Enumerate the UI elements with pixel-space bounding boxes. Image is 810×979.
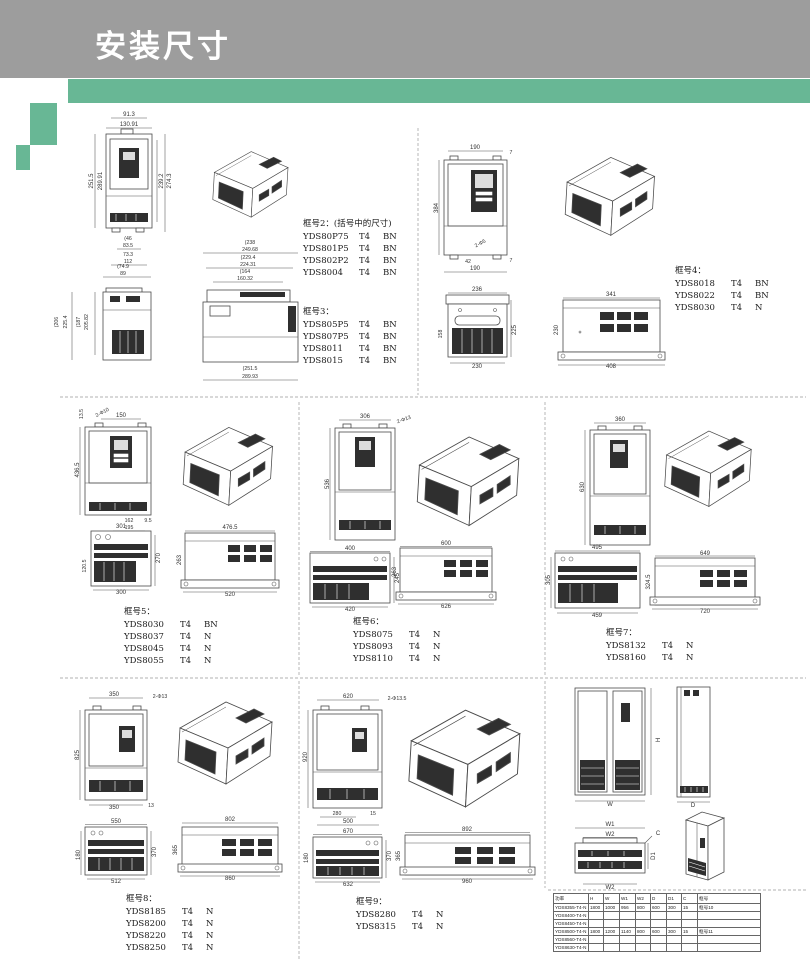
model-code: YDS8185 — [126, 906, 182, 918]
dim-label: 300 — [116, 590, 127, 596]
table-cell — [620, 944, 636, 952]
dim-label: (164 — [240, 269, 250, 275]
table-cell: YDS8450-T4-N — [554, 920, 589, 928]
voltage-class: T4 — [182, 930, 206, 942]
table-header-cell: D1 — [667, 894, 682, 904]
table-cell: 1140 — [620, 928, 636, 936]
model-row: YDS80P75T4BN — [303, 231, 397, 243]
variant-code: BN — [383, 320, 397, 330]
dim-label: 13.5 — [79, 409, 85, 419]
table-row: YDS8500-T4-N 1800 1200 1140 800 600 300 … — [554, 928, 761, 936]
dim-label: (74.9 — [117, 264, 129, 270]
frame6-bottom-view-right: 600 263 626 — [392, 541, 496, 610]
dim-label: 802 — [225, 817, 236, 823]
frame7-front-view: 360 630 — [580, 417, 650, 545]
table-cell — [651, 912, 667, 920]
frame6-isometric-view — [417, 437, 519, 526]
table-cell: 300 — [667, 904, 682, 912]
variant-code: BN — [383, 356, 397, 366]
dim-label: 274.3 — [167, 173, 173, 189]
model-row: YDS8200T4N — [126, 918, 213, 930]
frame5-bottom-view-right: 476.5 263 520 — [177, 525, 279, 598]
dim-label: 495 — [592, 545, 603, 551]
dim-label: 263 — [392, 566, 398, 577]
dim-label: 370 — [387, 850, 393, 861]
frame2-title: 框号2：(括号中的尺寸) — [303, 218, 397, 230]
dim-label: (238 — [245, 240, 255, 246]
table-cell: YDS8355-T4-N — [554, 904, 589, 912]
dim-label: (46 — [124, 236, 132, 242]
table-row: YDS8630-T4-N — [554, 944, 761, 952]
table-header-cell: W — [604, 894, 620, 904]
model-code: YDS8075 — [353, 629, 409, 641]
table-cell — [589, 936, 604, 944]
dim-label: 2-Φ10 — [95, 407, 111, 419]
model-code: YDS8018 — [675, 278, 731, 290]
dim-label: 350 — [109, 805, 120, 811]
model-row: YDS8315T4N — [356, 921, 443, 933]
model-code: YDS80P75 — [303, 231, 359, 243]
table-header-cell: 功率 — [554, 894, 589, 904]
voltage-class: T4 — [359, 331, 383, 343]
variant-code: BN — [383, 232, 397, 242]
table-row: YDS8355-T4-N 1800 1000 956 800 600 300 1… — [554, 904, 761, 912]
variant-code: N — [206, 919, 213, 929]
model-code: YDS8030 — [124, 619, 180, 631]
variant-code: N — [206, 943, 213, 953]
dim-label: 550 — [111, 819, 122, 825]
table-cell — [651, 944, 667, 952]
dim-label: 158 — [438, 330, 444, 339]
model-code: YDS8280 — [356, 909, 412, 921]
table-cell — [698, 912, 761, 920]
frame7-bottom-view-left: 495 305 459 — [546, 545, 640, 619]
voltage-class: T4 — [412, 909, 436, 921]
model-code: YDS8015 — [303, 355, 359, 367]
model-code: YDS8160 — [606, 652, 662, 664]
variant-code: N — [433, 654, 440, 664]
frame5-isometric-view — [183, 427, 272, 505]
model-row: YDS8075T4N — [353, 629, 440, 641]
table-cell — [636, 944, 651, 952]
dim-label: (206 — [54, 317, 60, 327]
frame2-model-list: 框号2：(括号中的尺寸) YDS80P75T4BNYDS801P5T4BNYDS… — [303, 218, 397, 279]
model-code: YDS805P5 — [303, 319, 359, 331]
dim-label: 160.32 — [237, 276, 253, 282]
cabinet-side-view: D — [677, 687, 710, 809]
dim-label: 2-Φ13.5 — [388, 696, 407, 702]
dim-label: 7 — [510, 150, 513, 156]
variant-code: N — [433, 630, 440, 640]
dim-label: 289.93 — [242, 374, 258, 380]
frame8-bottom-view-left: 550 180 370 512 — [76, 819, 158, 885]
table-cell — [589, 944, 604, 952]
dim-label: 13 — [148, 803, 154, 809]
voltage-class: T4 — [182, 942, 206, 954]
table-cell: 1200 — [604, 928, 620, 936]
table-cell — [667, 936, 682, 944]
variant-code: BN — [755, 279, 769, 289]
dim-label: 632 — [343, 882, 354, 888]
table-cell — [698, 936, 761, 944]
frame5-bottom-view-left: 301 120.5 270 300 — [82, 524, 162, 596]
model-code: YDS807P5 — [303, 331, 359, 343]
frame4-bottom-view-right: 341 230 408 — [554, 292, 665, 370]
dim-label: 670 — [343, 829, 354, 835]
frame6-model-list: 框号6： YDS8075T4NYDS8093T4NYDS8110T4N — [353, 616, 440, 665]
technical-drawings: 91.3 130.91 251.5 289.91 239.2 274.3 (46… — [0, 0, 810, 979]
dim-label: 251.5 — [89, 173, 95, 189]
cabinet-top-view: W1 W2 C D1 W2 — [575, 822, 661, 891]
voltage-class: T4 — [359, 255, 383, 267]
voltage-class: T4 — [359, 243, 383, 255]
frame6-bottom-view-left: 400 245 420 — [310, 546, 401, 613]
frame8-bottom-view-right: 802 365 860 — [173, 817, 282, 882]
dim-label: 230 — [472, 364, 483, 370]
frame7-model-list: 框号7： YDS8132T4NYDS8160T4N — [606, 627, 693, 664]
variant-code: BN — [383, 332, 397, 342]
dim-label: 306 — [360, 414, 371, 420]
frame5-title: 框号5： — [124, 606, 218, 618]
table-cell: YDS8500-T4-N — [554, 928, 589, 936]
table-cell: 框号11 — [698, 928, 761, 936]
dim-label: 476.5 — [222, 525, 238, 531]
model-row: YDS8110T4N — [353, 653, 440, 665]
table-cell — [636, 920, 651, 928]
dim-label: 89 — [120, 271, 126, 277]
variant-code: BN — [383, 256, 397, 266]
table-cell: 框号10 — [698, 904, 761, 912]
model-row: YDS8018T4BN — [675, 278, 769, 290]
dim-label: 190 — [470, 145, 481, 151]
table-row: YDS8450-T4-N — [554, 920, 761, 928]
model-code: YDS801P5 — [303, 243, 359, 255]
model-row: YDS8037T4N — [124, 631, 218, 643]
dim-label: (229.4 — [241, 255, 256, 261]
table-cell: 15 — [682, 904, 698, 912]
variant-code: N — [433, 642, 440, 652]
voltage-class: T4 — [359, 267, 383, 279]
table-cell — [604, 936, 620, 944]
voltage-class: T4 — [359, 319, 383, 331]
table-header-cell: H — [589, 894, 604, 904]
table-cell — [682, 944, 698, 952]
dim-label: 365 — [173, 844, 179, 855]
dim-label: 9.5 — [144, 518, 151, 524]
voltage-class: T4 — [182, 918, 206, 930]
voltage-class: T4 — [409, 641, 433, 653]
variant-code: N — [686, 641, 693, 651]
dim-label: 341 — [606, 292, 617, 298]
voltage-class: T4 — [412, 921, 436, 933]
dim-label: 73.3 — [123, 252, 133, 258]
table-header-cell: C — [682, 894, 698, 904]
voltage-class: T4 — [182, 906, 206, 918]
model-row: YDS8030T4N — [675, 302, 769, 314]
table-cell — [682, 912, 698, 920]
dim-label: 620 — [343, 694, 354, 700]
model-row: YDS801P5T4BN — [303, 243, 397, 255]
dim-label: 2-Φ13 — [396, 415, 412, 426]
variant-code: N — [755, 303, 762, 313]
manual-page: 安装尺寸 — [0, 0, 810, 979]
table-cell — [620, 936, 636, 944]
model-row: YDS8011T4BN — [303, 343, 397, 355]
frame23-isometric-view — [213, 152, 288, 218]
dim-label: 420 — [345, 607, 356, 613]
voltage-class: T4 — [731, 302, 755, 314]
model-code: YDS802P2 — [303, 255, 359, 267]
model-code: YDS8200 — [126, 918, 182, 930]
dim-label: 301 — [116, 524, 127, 530]
dim-label: W1 — [606, 822, 616, 828]
frame23-front-view: 91.3 130.91 251.5 289.91 239.2 274.3 (46… — [89, 112, 173, 265]
table-cell — [651, 936, 667, 944]
dim-label: W — [607, 802, 613, 808]
dim-label: W2 — [606, 885, 616, 891]
model-code: YDS8055 — [124, 655, 180, 667]
variant-code: N — [436, 922, 443, 932]
variant-code: N — [206, 931, 213, 941]
table-header-cell: D — [651, 894, 667, 904]
dim-label: 225 — [512, 324, 518, 335]
dim-label: C — [656, 831, 661, 837]
frame9-bottom-view-left: 670 180 370 632 — [304, 829, 393, 888]
table-cell — [620, 920, 636, 928]
model-row: YDS807P5T4BN — [303, 331, 397, 343]
variant-code: BN — [204, 620, 218, 630]
model-row: YDS8220T4N — [126, 930, 213, 942]
frame8-title: 框号8： — [126, 893, 213, 905]
model-code: YDS8011 — [303, 343, 359, 355]
frame4-isometric-view — [565, 157, 654, 235]
model-row: YDS8250T4N — [126, 942, 213, 954]
dim-label: 892 — [462, 827, 473, 833]
frame8-front-view: 350 2-Φ13 825 350 13 — [75, 692, 167, 811]
frame4-title: 框号4： — [675, 265, 769, 277]
dim-label: 324.5 — [646, 574, 652, 590]
variant-code: N — [436, 910, 443, 920]
model-code: YDS8110 — [353, 653, 409, 665]
frame6-front-view: 306 2-Φ13 536 — [325, 414, 412, 540]
table-row: YDS8560-T4-N — [554, 936, 761, 944]
model-row: YDS8015T4BN — [303, 355, 397, 367]
table-header-cell: W1 — [620, 894, 636, 904]
voltage-class: T4 — [409, 629, 433, 641]
frame7-isometric-view — [665, 431, 751, 506]
table-cell: YDS8400-T4-N — [554, 912, 589, 920]
model-row: YDS8280T4N — [356, 909, 443, 921]
dim-label: 270 — [156, 552, 162, 563]
dim-label: 263 — [177, 554, 183, 565]
model-code: YDS8022 — [675, 290, 731, 302]
frame5-front-view: 13.5 2-Φ10 150 436.5 162 195 9.5 — [75, 407, 152, 531]
dim-label: 350 — [109, 692, 120, 698]
table-cell: 1800 — [589, 928, 604, 936]
frame9-front-view: 620 2-Φ13.5 920 280 15 500 — [303, 694, 407, 825]
dim-label: D — [691, 803, 696, 809]
voltage-class: T4 — [731, 278, 755, 290]
table-header-cell: W2 — [636, 894, 651, 904]
table-cell: 15 — [682, 928, 698, 936]
frame8-isometric-view — [178, 702, 272, 784]
table-cell: 1000 — [604, 904, 620, 912]
dim-label: 500 — [343, 819, 354, 825]
model-code: YDS8132 — [606, 640, 662, 652]
table-cell — [604, 944, 620, 952]
dim-label: 2-Φ13 — [153, 694, 168, 700]
variant-code: BN — [383, 244, 397, 254]
model-code: YDS8030 — [675, 302, 731, 314]
dim-label: 289.91 — [98, 171, 104, 190]
table-cell: YDS8630-T4-N — [554, 944, 589, 952]
dim-label: 224.31 — [240, 262, 256, 268]
table-cell — [604, 920, 620, 928]
voltage-class: T4 — [409, 653, 433, 665]
frame4-model-list: 框号4： YDS8018T4BNYDS8022T4BNYDS8030T4N — [675, 265, 769, 314]
voltage-class: T4 — [180, 619, 204, 631]
dim-label: 150 — [116, 413, 127, 419]
dim-label: W2 — [606, 832, 616, 838]
cabinet-front-view: H W — [575, 688, 662, 808]
frame4-front-view: 190 7 384 2-Φ5 42 7 190 — [434, 145, 513, 272]
voltage-class: T4 — [359, 355, 383, 367]
dim-label: 720 — [700, 609, 711, 615]
table-cell: 600 — [651, 904, 667, 912]
table-cell — [667, 912, 682, 920]
dim-label: 130.91 — [120, 122, 139, 128]
table-cell — [698, 944, 761, 952]
dim-label: 280 — [333, 811, 342, 817]
variant-code: BN — [755, 291, 769, 301]
model-code: YDS8004 — [303, 267, 359, 279]
table-cell — [682, 920, 698, 928]
model-code: YDS8250 — [126, 942, 182, 954]
table-cell — [667, 944, 682, 952]
voltage-class: T4 — [662, 652, 686, 664]
dim-label: 230 — [554, 324, 560, 335]
table-cell — [651, 920, 667, 928]
dim-label: 205.82 — [84, 314, 90, 330]
dim-label: 120.5 — [82, 559, 88, 572]
model-row: YDS8030T4BN — [124, 619, 218, 631]
model-row: YDS8022T4BN — [675, 290, 769, 302]
model-row: YDS8132T4N — [606, 640, 693, 652]
model-row: YDS8055T4N — [124, 655, 218, 667]
dim-label: 365 — [396, 850, 402, 861]
model-row: YDS802P2T4BN — [303, 255, 397, 267]
model-row: YDS8045T4N — [124, 643, 218, 655]
voltage-class: T4 — [359, 343, 383, 355]
dim-label: 860 — [225, 876, 236, 882]
model-row: YDS8160T4N — [606, 652, 693, 664]
dim-label: 7 — [510, 258, 513, 264]
dim-label: 236 — [472, 287, 483, 293]
variant-code: BN — [383, 344, 397, 354]
table-cell: 1800 — [589, 904, 604, 912]
table-cell: YDS8560-T4-N — [554, 936, 589, 944]
frame7-title: 框号7： — [606, 627, 693, 639]
dim-label: 520 — [225, 592, 236, 598]
table-cell: 800 — [636, 928, 651, 936]
frame8-model-list: 框号8： YDS8185T4NYDS8200T4NYDS8220T4NYDS82… — [126, 893, 213, 954]
table-cell — [667, 920, 682, 928]
cabinet-isometric-view — [686, 812, 724, 880]
frame23-side-view-small: (74.9 89 (206 225.4 (187 205.82 — [54, 264, 151, 360]
dim-label: 225.4 — [63, 315, 69, 328]
dim-label: 960 — [462, 879, 473, 885]
dim-label: 190 — [470, 266, 481, 272]
voltage-class: T4 — [180, 631, 204, 643]
table-cell — [636, 936, 651, 944]
frame23-side-view-large: (238 249.68 (229.4 224.31 (164 160.32 (2… — [203, 240, 298, 380]
table-cell: 956 — [620, 904, 636, 912]
dim-label: 249.68 — [242, 247, 258, 253]
frame6-title: 框号6： — [353, 616, 440, 628]
model-row: YDS8093T4N — [353, 641, 440, 653]
variant-code: N — [686, 653, 693, 663]
cabinet-dimension-table: 功率HWW1W2DD1C框号 YDS8355-T4-N 1800 1000 95… — [553, 893, 761, 952]
table-cell — [698, 920, 761, 928]
dim-label: 400 — [345, 546, 356, 552]
frame3-model-list: 框号3： YDS805P5T4BNYDS807P5T4BNYDS8011T4BN… — [303, 306, 397, 367]
variant-code: N — [204, 632, 211, 642]
dim-label: 180 — [304, 852, 310, 863]
model-code: YDS8037 — [124, 631, 180, 643]
model-code: YDS8315 — [356, 921, 412, 933]
voltage-class: T4 — [180, 655, 204, 667]
voltage-class: T4 — [662, 640, 686, 652]
dim-label: 370 — [152, 846, 158, 857]
model-code: YDS8093 — [353, 641, 409, 653]
table-cell — [589, 920, 604, 928]
table-cell — [636, 912, 651, 920]
dim-label: 239.2 — [159, 173, 165, 189]
variant-code: BN — [383, 268, 397, 278]
frame5-model-list: 框号5： YDS8030T4BNYDS8037T4NYDS8045T4NYDS8… — [124, 606, 218, 667]
frame3-title: 框号3： — [303, 306, 397, 318]
dim-label: 600 — [441, 541, 452, 547]
table-row: YDS8400-T4-N — [554, 912, 761, 920]
dim-label: 512 — [111, 879, 122, 885]
dim-label: D1 — [651, 852, 657, 860]
model-row: YDS8004T4BN — [303, 267, 397, 279]
dim-label: (187 — [76, 317, 82, 327]
table-cell: 800 — [636, 904, 651, 912]
model-code: YDS8220 — [126, 930, 182, 942]
table-cell — [589, 912, 604, 920]
frame9-title: 框号9： — [356, 896, 443, 908]
table-cell: 600 — [651, 928, 667, 936]
dim-label: 626 — [441, 604, 452, 610]
dim-label: 83.5 — [123, 243, 133, 249]
voltage-class: T4 — [180, 643, 204, 655]
model-row: YDS805P5T4BN — [303, 319, 397, 331]
table-cell: 300 — [667, 928, 682, 936]
dim-label: (251.5 — [243, 366, 258, 372]
variant-code: N — [204, 656, 211, 666]
model-code: YDS8045 — [124, 643, 180, 655]
dim-label: 15 — [370, 811, 376, 817]
dim-label: 360 — [615, 417, 626, 423]
frame9-model-list: 框号9： YDS8280T4NYDS8315T4N — [356, 896, 443, 933]
frame9-isometric-view — [409, 710, 520, 807]
table-cell — [620, 912, 636, 920]
dim-label: 459 — [592, 613, 603, 619]
table-cell — [604, 912, 620, 920]
variant-code: N — [204, 644, 211, 654]
dim-label: H — [656, 738, 662, 742]
